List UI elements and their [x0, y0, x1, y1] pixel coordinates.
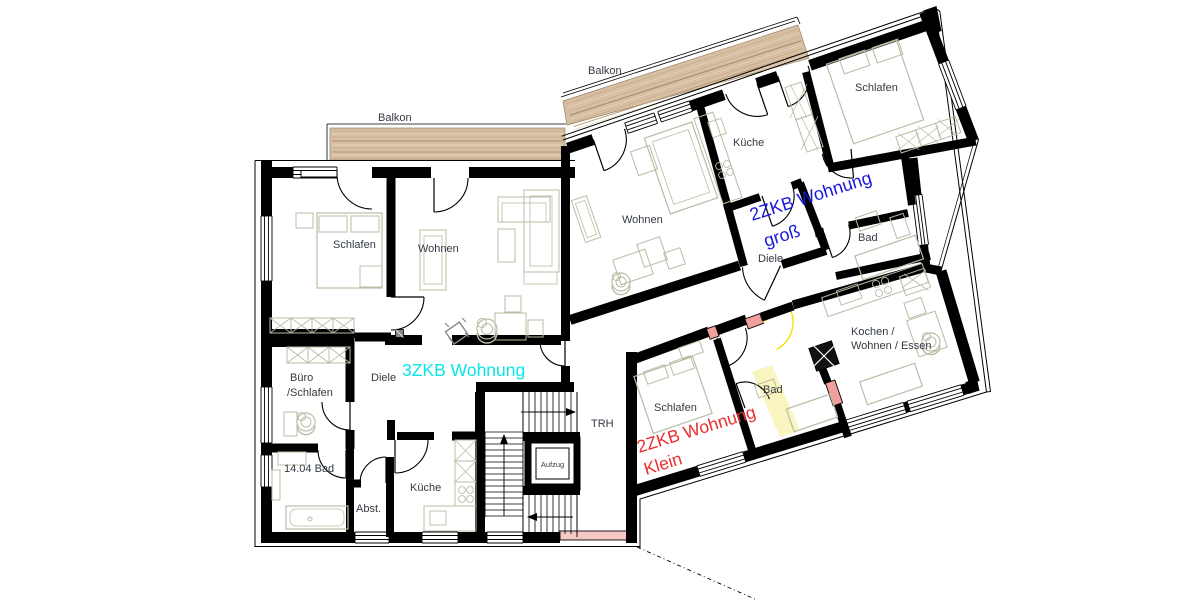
- svg-text:Balkon: Balkon: [378, 112, 412, 124]
- svg-text:Büro: Büro: [290, 372, 313, 384]
- svg-text:Bad: Bad: [858, 232, 878, 244]
- svg-text:Schlafen: Schlafen: [654, 402, 697, 414]
- svg-text:Küche: Küche: [733, 137, 764, 149]
- svg-text:Kochen /: Kochen /: [851, 326, 895, 338]
- svg-text:Balkon: Balkon: [588, 65, 622, 77]
- svg-text:Bad: Bad: [763, 384, 783, 396]
- svg-text:Küche: Küche: [410, 482, 441, 494]
- svg-text:Wohnen: Wohnen: [418, 243, 459, 255]
- svg-text:Schlafen: Schlafen: [855, 82, 898, 94]
- svg-text:Schlafen: Schlafen: [333, 239, 376, 251]
- svg-text:3ZKB Wohnung: 3ZKB Wohnung: [402, 360, 525, 380]
- svg-text:Diele: Diele: [758, 253, 783, 265]
- svg-text:/Schlafen: /Schlafen: [287, 387, 333, 399]
- svg-text:Diele: Diele: [371, 372, 396, 384]
- svg-text:Abst.: Abst.: [356, 503, 381, 515]
- svg-text:Wohnen: Wohnen: [622, 214, 663, 226]
- svg-text:Aufzug: Aufzug: [541, 460, 564, 469]
- svg-text:Wohnen / Essen: Wohnen / Essen: [851, 340, 932, 352]
- svg-text:14.04 Bad: 14.04 Bad: [284, 463, 334, 475]
- svg-text:TRH: TRH: [591, 418, 614, 430]
